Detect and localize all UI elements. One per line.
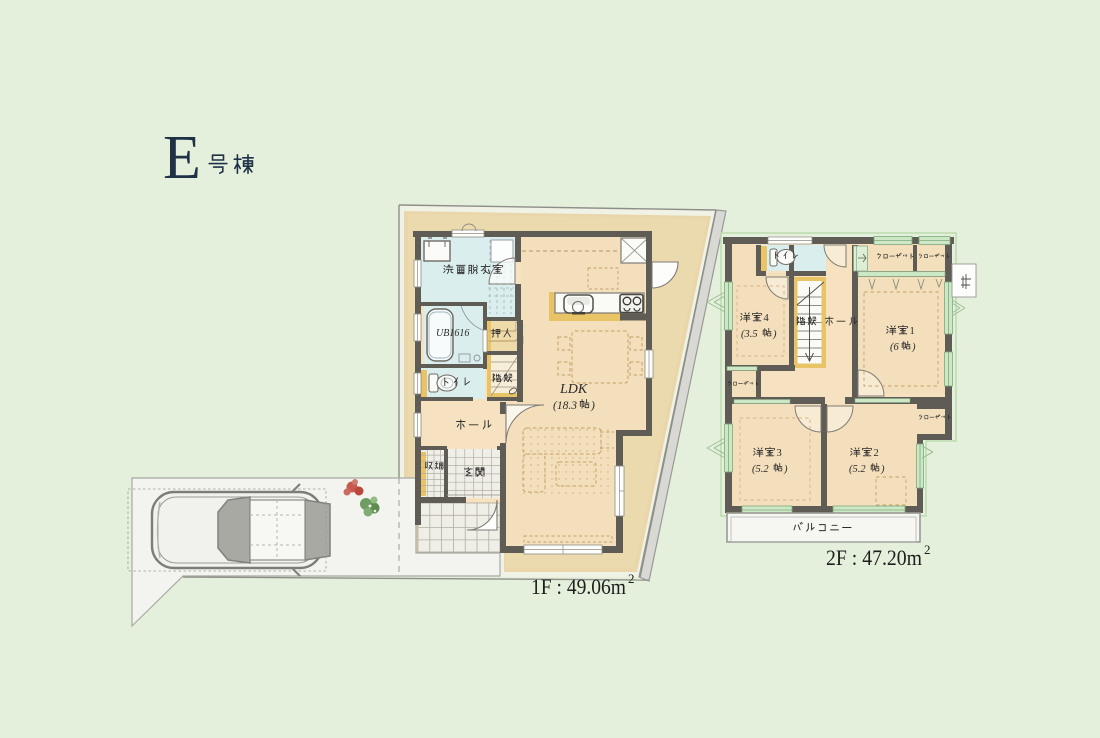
svg-text:4: 4 [764,313,770,324]
svg-text:3: 3 [777,448,782,459]
svg-text:2: 2 [924,542,931,557]
svg-text:(5.2: (5.2 [849,464,866,475]
svg-text:2: 2 [628,571,635,586]
svg-text:(6: (6 [890,342,899,353]
svg-text:): ) [783,464,788,475]
svg-text:): ) [880,464,885,475]
svg-text:E: E [163,124,201,192]
svg-text:LDK: LDK [559,382,588,397]
svg-text:1: 1 [910,326,915,337]
svg-text:2F : 47.20m: 2F : 47.20m [826,545,922,570]
svg-text:): ) [590,400,595,412]
svg-text:UB1616: UB1616 [436,328,469,339]
svg-text:(18.3: (18.3 [553,400,577,412]
svg-text:2: 2 [874,448,879,459]
svg-text:): ) [911,342,916,353]
svg-text:(5.2: (5.2 [752,464,769,475]
svg-text:): ) [772,329,777,340]
svg-text:(3.5: (3.5 [741,329,758,340]
svg-text:1F : 49.06m: 1F : 49.06m [531,574,626,599]
